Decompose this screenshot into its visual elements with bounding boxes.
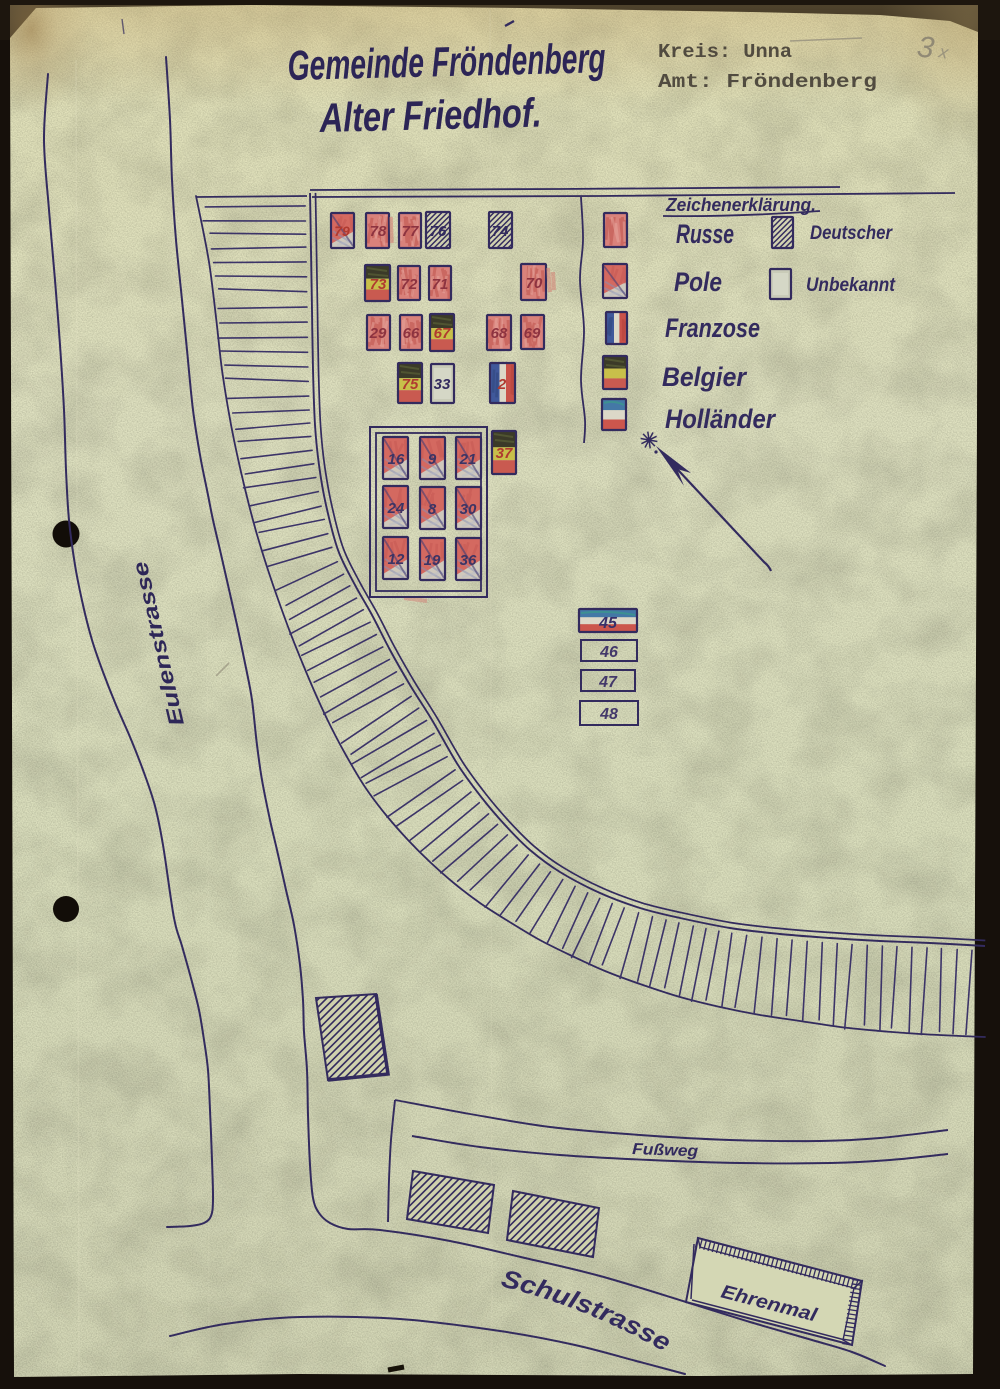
svg-text:Holländer: Holländer <box>665 404 776 434</box>
svg-text:Unbekannt: Unbekannt <box>806 275 896 296</box>
svg-text:48: 48 <box>599 706 618 723</box>
svg-text:Franzose: Franzose <box>665 313 760 343</box>
svg-text:24: 24 <box>387 500 405 517</box>
svg-text:45: 45 <box>598 615 618 632</box>
svg-text:Kreis: Unna: Kreis: Unna <box>658 41 792 63</box>
svg-text:Russe: Russe <box>676 219 734 249</box>
svg-text:37: 37 <box>496 445 513 462</box>
svg-text:70: 70 <box>526 275 543 292</box>
svg-text:33: 33 <box>434 376 451 393</box>
svg-text:36: 36 <box>460 552 477 569</box>
svg-text:Amt: Fröndenberg: Amt: Fröndenberg <box>658 71 877 93</box>
svg-text:78: 78 <box>370 223 387 240</box>
svg-text:19: 19 <box>424 552 441 569</box>
svg-text:Pole: Pole <box>674 267 722 297</box>
svg-text:75: 75 <box>402 376 419 393</box>
svg-text:74: 74 <box>492 223 509 240</box>
svg-text:21: 21 <box>459 451 477 468</box>
svg-text:73: 73 <box>370 276 387 293</box>
svg-text:16: 16 <box>388 451 405 468</box>
svg-text:77: 77 <box>402 223 419 240</box>
svg-text:66: 66 <box>403 325 420 342</box>
svg-text:9: 9 <box>428 451 437 468</box>
svg-text:2: 2 <box>497 376 507 393</box>
svg-text:Deutscher: Deutscher <box>810 223 893 244</box>
svg-text:76: 76 <box>430 223 447 240</box>
svg-text:30: 30 <box>460 501 477 518</box>
svg-text:Fußweg: Fußweg <box>632 1141 699 1160</box>
svg-text:8: 8 <box>428 501 437 518</box>
svg-text:68: 68 <box>491 325 508 342</box>
svg-text:Belgier: Belgier <box>662 362 747 392</box>
svg-text:29: 29 <box>369 325 387 342</box>
svg-text:12: 12 <box>388 551 405 568</box>
svg-text:46: 46 <box>599 644 618 661</box>
svg-text:72: 72 <box>401 276 418 293</box>
svg-text:67: 67 <box>434 325 451 342</box>
svg-text:79: 79 <box>334 223 350 239</box>
svg-text:71: 71 <box>432 276 449 293</box>
svg-text:Alter Friedhof.: Alter Friedhof. <box>318 90 542 141</box>
svg-text:69: 69 <box>524 325 541 342</box>
svg-text:47: 47 <box>598 674 618 691</box>
svg-text:Gemeinde Fröndenberg: Gemeinde Fröndenberg <box>287 34 606 89</box>
